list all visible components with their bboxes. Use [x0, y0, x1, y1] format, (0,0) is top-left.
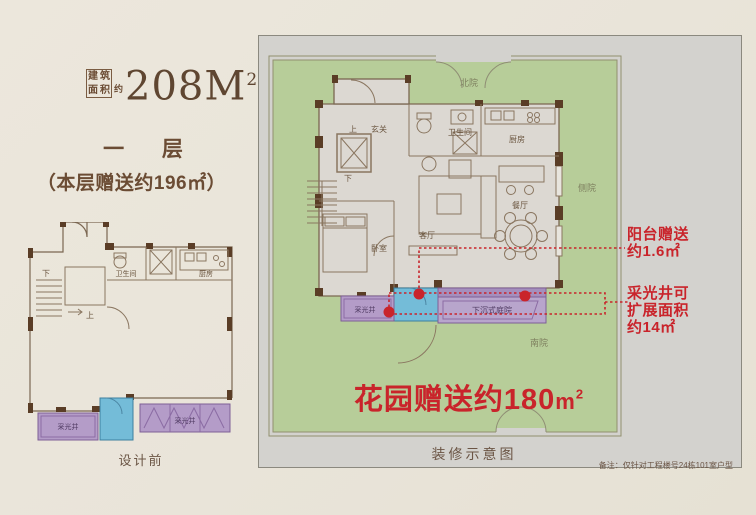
before-down-label: 下 — [42, 269, 50, 278]
bathroom-label: 卫生间 — [448, 127, 472, 137]
before-lightwell-left: 采光井 — [38, 413, 98, 440]
area-char: 积 — [99, 84, 111, 98]
before-kitchen-label: 厨房 — [199, 269, 213, 278]
area-superscript: 2 — [246, 70, 258, 90]
lightwell-expand-line1: 采光井可 — [627, 285, 689, 302]
before-lightwell-right-label: 采光井 — [175, 416, 196, 425]
balcony-gift-note: 阳台赠送 约1.6㎡ — [627, 226, 689, 260]
panel-footnote: 备注：仅针对工程楼号24栋101室户型 — [599, 460, 733, 471]
side-yard-label: 侧院 — [578, 182, 596, 193]
balcony-gift-line1: 阳台赠送 — [627, 226, 689, 243]
balcony-dot — [414, 289, 425, 300]
dining-label: 餐厅 — [512, 201, 528, 210]
south-gate-gap — [496, 428, 546, 435]
garden-gift-unit: m — [555, 389, 576, 414]
before-caption: 设计前 — [96, 450, 186, 469]
lightwell-expand-note: 采光井可 扩展面积 约14㎡ — [627, 285, 689, 336]
area-char: 面 — [87, 84, 99, 98]
lightwell-zone-label: 采光井 — [355, 305, 376, 314]
lightwell-expand-line3: 约14㎡ — [627, 319, 689, 336]
before-balcony-blue — [100, 398, 133, 440]
kitchen-label: 厨房 — [509, 134, 525, 144]
north-yard-label: 北院 — [460, 77, 478, 88]
north-gate-gap — [436, 54, 511, 62]
before-lightwell-right: 采光井 — [140, 404, 230, 432]
before-wall-piers — [28, 222, 232, 413]
before-lightwell-left-label: 采光井 — [58, 422, 79, 431]
window — [556, 166, 562, 196]
floor-subtitle: （本层赠送约196㎡） — [24, 168, 239, 195]
courtyard-dot — [520, 291, 531, 302]
area-char: 筑 — [99, 70, 111, 84]
south-yard-label: 南院 — [530, 337, 548, 348]
living-label: 客厅 — [419, 230, 435, 240]
area-value: 208M2 — [125, 60, 258, 106]
bedroom-label: 卧室 — [371, 243, 387, 253]
area-char: 建 — [87, 70, 99, 84]
renovation-panel: 北院 侧院 南院 — [258, 35, 742, 468]
building-area-chars-box: 建筑面积 — [86, 69, 112, 98]
foyer-label: 玄关 — [371, 124, 387, 134]
before-up-label: 上 — [86, 311, 94, 320]
garden-gift-sup: 2 — [576, 386, 584, 401]
garden-gift-headline: 花园赠送约180m2 — [314, 376, 624, 418]
header-area: 建筑面积 约 208M2 — [86, 60, 258, 106]
approx-char: 约 — [114, 82, 123, 95]
floor-title: 一 层 — [96, 133, 206, 163]
floorplan-before-design: 卫生间 厨房 下 上 采光井 采光井 — [28, 222, 245, 448]
up-label: 上 — [349, 125, 357, 134]
window — [556, 226, 562, 256]
balcony-gift-line2: 约1.6㎡ — [627, 243, 689, 260]
lightwell-expand-line2: 扩展面积 — [627, 302, 689, 319]
down-label: 下 — [344, 174, 352, 183]
before-bathroom-label: 卫生间 — [116, 269, 137, 278]
